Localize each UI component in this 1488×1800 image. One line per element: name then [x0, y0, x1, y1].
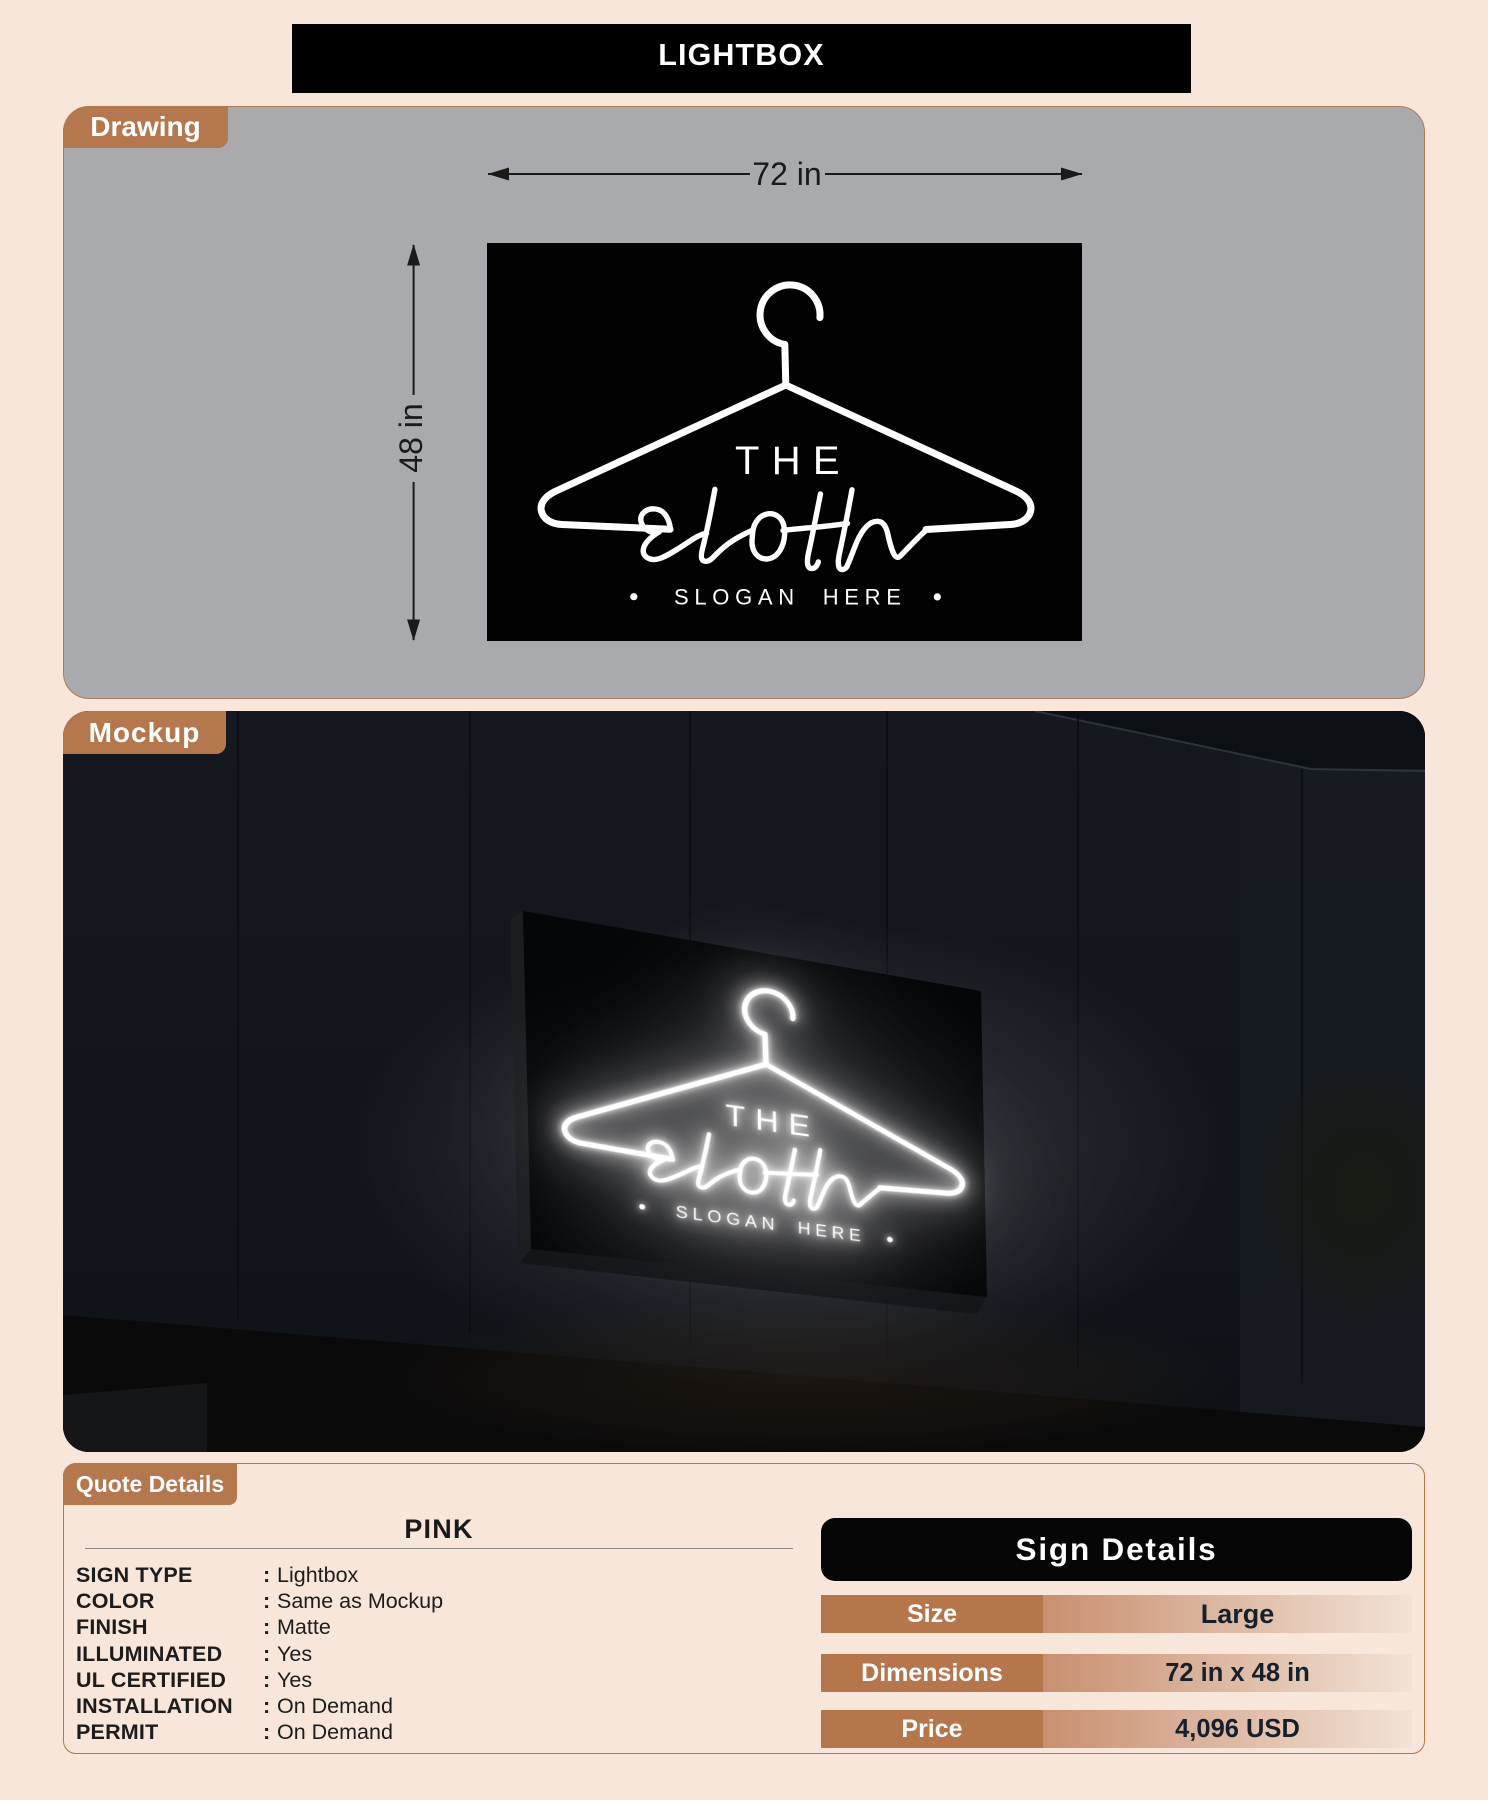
svg-text:72 in: 72 in	[752, 156, 821, 192]
svg-text:48 in: 48 in	[393, 403, 429, 472]
